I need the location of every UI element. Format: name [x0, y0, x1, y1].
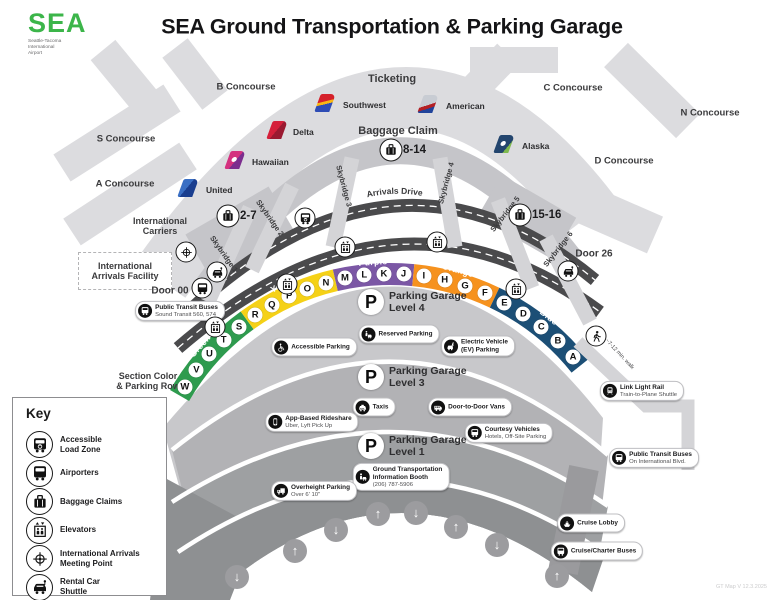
baggage-claim-icon-0	[217, 205, 240, 228]
traffic-arrow-up-icon: ↑	[366, 502, 390, 526]
baggage-claim-label: Baggage Claim	[358, 125, 437, 137]
key-item-5: Rental Car Shuttle	[26, 574, 100, 600]
reserved-icon	[362, 327, 376, 341]
parking-row-a: A	[566, 350, 581, 365]
level-label-line1: Parking Garage	[389, 365, 467, 377]
door-26-label: Door 26	[575, 248, 612, 259]
baggage-claim-range-1: 8-14	[403, 144, 426, 156]
international-carriers-label: International Carriers	[133, 216, 187, 236]
pill-text-line: Cruise/Charter Buses	[571, 547, 636, 555]
baggage-claim-range-2: 15-16	[532, 209, 561, 221]
key-item-label: Baggage Claims	[60, 497, 122, 507]
parking-row-k: K	[376, 267, 391, 282]
airport-map: SEA Seattle-Tacoma International Airport…	[0, 0, 775, 600]
pill-text-line: Electric Vehicle	[461, 338, 508, 346]
traffic-arrow-up-icon: ↑	[545, 564, 569, 588]
pill-text-line: Link Light Rail	[620, 383, 677, 391]
pill-text-line: On International Blvd.	[629, 458, 692, 465]
parking-row-f: F	[477, 286, 492, 301]
traffic-arrow-up-icon: ↑	[444, 515, 468, 539]
car-key-icon	[26, 574, 53, 600]
wheelchair-icon	[274, 340, 288, 354]
accessible-parking-pill: Accessible Parking	[271, 338, 357, 357]
parking-row-l: L	[357, 268, 372, 283]
rental-car-shuttle-door26-icon	[558, 261, 579, 282]
train-icon	[603, 384, 617, 398]
pill-text-line: Taxis	[373, 403, 389, 411]
courtesy-vehicles-pill: Courtesy VehiclesHotels, Off-Site Parkin…	[465, 423, 553, 443]
app-based-rideshare-pill: App-Based RideshareUber, Lyft Pick Up	[265, 412, 358, 432]
key-item-0: Accessible Load Zone	[26, 431, 102, 458]
elevator-icon-3	[335, 237, 356, 258]
parking-row-q: Q	[264, 297, 279, 312]
elevator-icon-1	[205, 317, 226, 338]
pill-text-line: Public Transit Buses	[155, 303, 218, 311]
crosshair-icon	[26, 545, 53, 572]
baggage-claim-icon-1	[380, 139, 403, 162]
pill-text-line: (EV) Parking	[461, 346, 508, 354]
pill-text-line: Hotels, Off-Site Parking	[485, 433, 546, 440]
key-item-label: Rental Car Shuttle	[60, 577, 100, 596]
parking-row-d: D	[516, 306, 531, 321]
map-version-note: GT Map V 12.3.2025	[716, 584, 767, 590]
baggage-claim-range-0: 2-7	[240, 210, 257, 222]
level-label-line2: Level 1	[389, 446, 467, 458]
reserved-parking-pill: Reserved Parking	[359, 325, 440, 344]
info-icon	[356, 470, 370, 484]
taxi-icon	[356, 400, 370, 414]
concourse-label-s: S Concourse	[97, 135, 156, 146]
hawaiian-airline-label: Hawaiian	[252, 157, 289, 167]
pill-text-line: Cruise Lobby	[577, 519, 618, 527]
bus-icon	[26, 460, 53, 487]
parking-row-i: I	[416, 269, 431, 284]
alaska-airline-label: Alaska	[522, 141, 549, 151]
pedestrian-walk-icon	[586, 326, 607, 347]
bus-icon	[138, 304, 152, 318]
parking-row-b: B	[550, 334, 565, 349]
elevator-icon	[26, 517, 53, 544]
accessible-bus-icon	[26, 431, 53, 458]
pill-text-line: App-Based Rideshare	[285, 414, 351, 422]
parking-level-label-0: Parking GarageLevel 4	[389, 290, 467, 314]
parking-row-r: R	[248, 307, 263, 322]
parking-row-o: O	[300, 281, 315, 296]
elevator-icon-2	[277, 274, 298, 295]
level-label-line1: Parking Garage	[389, 434, 467, 446]
baggage-claim-icon-2	[509, 204, 532, 227]
level-label-line2: Level 4	[389, 302, 467, 314]
concourse-label-a: A Concourse	[96, 180, 155, 191]
pill-text-line: Accessible Parking	[291, 343, 350, 351]
key-item-label: Airporters	[60, 468, 99, 478]
door-to-door-vans-pill: Door-to-Door Vans	[428, 398, 512, 417]
ship-icon	[560, 516, 574, 530]
cruise-charter-buses-pill: Cruise/Charter Buses	[551, 542, 643, 561]
parking-row-m: M	[337, 271, 352, 286]
section-name-purple: Purple	[359, 256, 388, 268]
key-item-4: International Arrivals Meeting Point	[26, 545, 140, 572]
american-airline-label: American	[446, 101, 485, 111]
bus-icon	[468, 426, 482, 440]
elevator-icon-5	[506, 279, 527, 300]
door-00-label: Door 00	[151, 285, 188, 296]
pill-text-line: Over 6' 10"	[291, 491, 350, 498]
concourse-label-d: D Concourse	[594, 157, 653, 168]
cruise-lobby-pill: Cruise Lobby	[557, 514, 625, 533]
concourse-arm-n	[616, 55, 688, 126]
key-item-1: Airporters	[26, 460, 99, 487]
traffic-arrow-down-icon: ↓	[485, 533, 509, 557]
pill-text-line: (206) 787-5906	[373, 481, 443, 488]
traffic-arrow-down-icon: ↓	[225, 565, 249, 589]
level-label-line1: Parking Garage	[389, 290, 467, 302]
parking-level-icon-1: P	[358, 364, 384, 390]
traffic-arrow-down-icon: ↓	[324, 518, 348, 542]
pill-text-line: Courtesy Vehicles	[485, 425, 546, 433]
parking-level-label-2: Parking GarageLevel 1	[389, 434, 467, 458]
traffic-arrow-up-icon: ↑	[283, 539, 307, 563]
parking-level-icon-0: P	[358, 289, 384, 315]
pill-text-line: Reserved Parking	[379, 330, 433, 338]
level-label-line2: Level 3	[389, 377, 467, 389]
concourse-arm-b2	[175, 48, 215, 100]
key-item-label: International Arrivals Meeting Point	[60, 549, 140, 568]
pill-text-line: Door-to-Door Vans	[448, 403, 505, 411]
arrivals-drive-label: Arrivals Drive	[366, 186, 424, 199]
united-airline-label: United	[206, 185, 232, 195]
truck-icon	[274, 484, 288, 498]
southwest-airline-label: Southwest	[343, 100, 386, 110]
ev-icon	[444, 339, 458, 353]
traffic-arrow-down-icon: ↓	[404, 501, 428, 525]
ticketing-label: Ticketing	[368, 73, 416, 85]
section-color-note: Section Color & Parking Row	[116, 371, 180, 391]
parking-row-h: H	[437, 273, 452, 288]
ground-transportation-info-booth-pill: Ground TransportationInformation Booth(2…	[353, 463, 450, 491]
terminal-band-d-end	[575, 200, 655, 235]
key-title: Key	[26, 406, 166, 421]
parking-row-w: W	[177, 379, 192, 394]
overheight-parking-pill: Overheight ParkingOver 6' 10"	[271, 481, 357, 501]
international-arrivals-meeting-point-icon	[176, 242, 197, 263]
pill-text-line: Uber, Lyft Pick Up	[285, 422, 351, 429]
delta-airline-label: Delta	[293, 127, 314, 137]
suitcase-icon	[26, 488, 53, 515]
concourse-label-n: N Concourse	[680, 109, 739, 120]
airporters-door00-icon	[192, 278, 213, 299]
public-transit-blvd-pill: Public Transit BusesOn International Blv…	[609, 448, 699, 468]
ev-parking-pill: Electric Vehicle(EV) Parking	[441, 336, 515, 357]
elevator-icon-4	[427, 232, 448, 253]
parking-level-icon-2: P	[358, 433, 384, 459]
parking-row-j: J	[396, 267, 411, 282]
key-item-label: Elevators	[60, 525, 96, 535]
key-item-3: Elevators	[26, 517, 96, 544]
taxis-pill: Taxis	[353, 398, 396, 417]
van-icon	[431, 400, 445, 414]
concourse-label-b: B Concourse	[216, 83, 275, 94]
parking-row-v: V	[189, 363, 204, 378]
parking-level-label-1: Parking GarageLevel 3	[389, 365, 467, 389]
international-arrivals-facility-label: International Arrivals Facility	[91, 261, 158, 282]
bus-icon	[554, 544, 568, 558]
map-key: Key Accessible Load ZoneAirportersBaggag…	[12, 397, 167, 596]
phone-icon	[268, 415, 282, 429]
bus-icon	[612, 451, 626, 465]
parking-row-s: S	[232, 319, 247, 334]
international-arrivals-facility-box: International Arrivals Facility	[78, 252, 172, 290]
key-item-label: Accessible Load Zone	[60, 435, 102, 454]
pill-text-line: Overheight Parking	[291, 483, 350, 491]
pill-text-line: Information Booth	[373, 473, 443, 481]
pill-text-line: Train-to-Plane Shuttle	[620, 391, 677, 398]
link-light-rail-pill: Link Light RailTrain-to-Plane Shuttle	[600, 381, 684, 401]
key-item-2: Baggage Claims	[26, 488, 122, 515]
concourse-label-c: C Concourse	[543, 84, 602, 95]
pill-text-line: Ground Transportation	[373, 465, 443, 473]
pill-text-line: Public Transit Buses	[629, 450, 692, 458]
parking-row-u: U	[202, 347, 217, 362]
accessible-load-zone-icon	[295, 208, 316, 229]
parking-row-n: N	[318, 275, 333, 290]
rental-car-shuttle-door00-icon	[207, 262, 228, 283]
